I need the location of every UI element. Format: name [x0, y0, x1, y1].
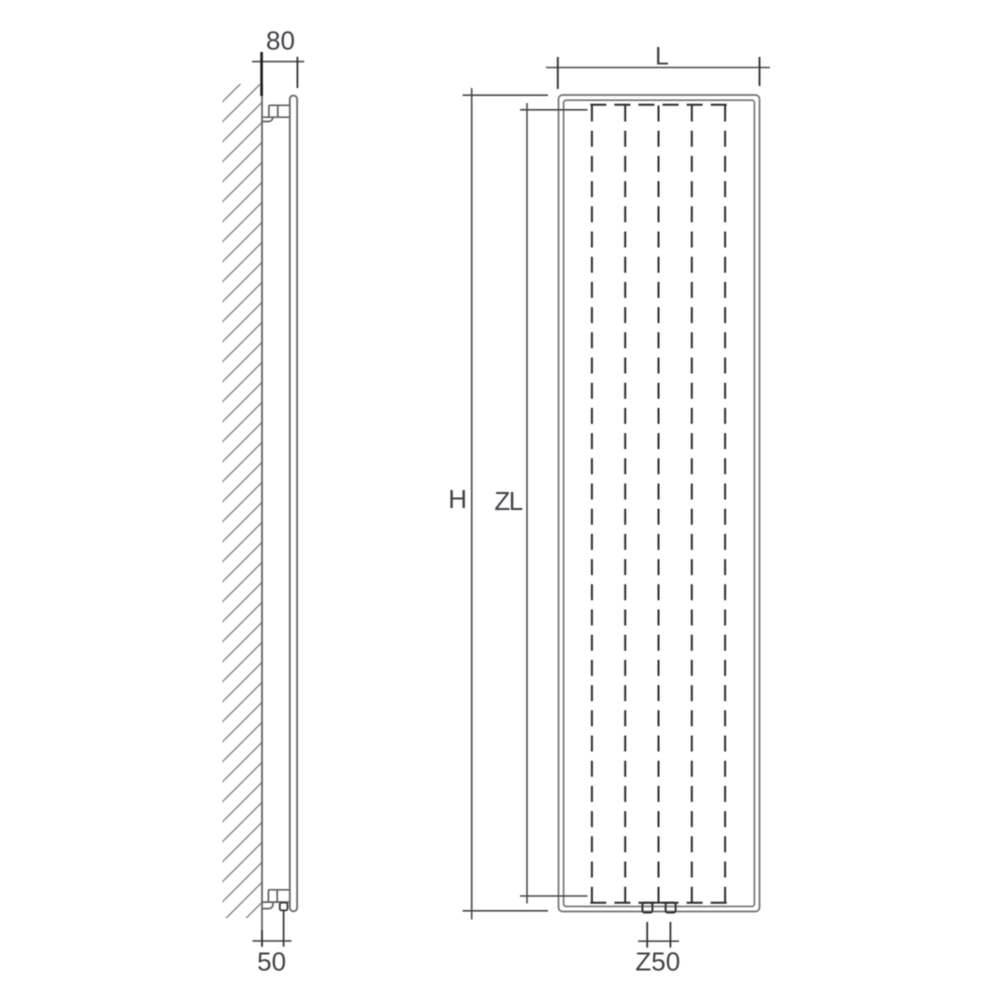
svg-text:ZL: ZL [494, 486, 522, 516]
svg-text:80: 80 [266, 25, 295, 55]
svg-text:L: L [655, 43, 669, 71]
svg-text:Z50: Z50 [635, 946, 680, 976]
svg-text:H: H [448, 484, 467, 514]
svg-text:50: 50 [257, 946, 286, 976]
